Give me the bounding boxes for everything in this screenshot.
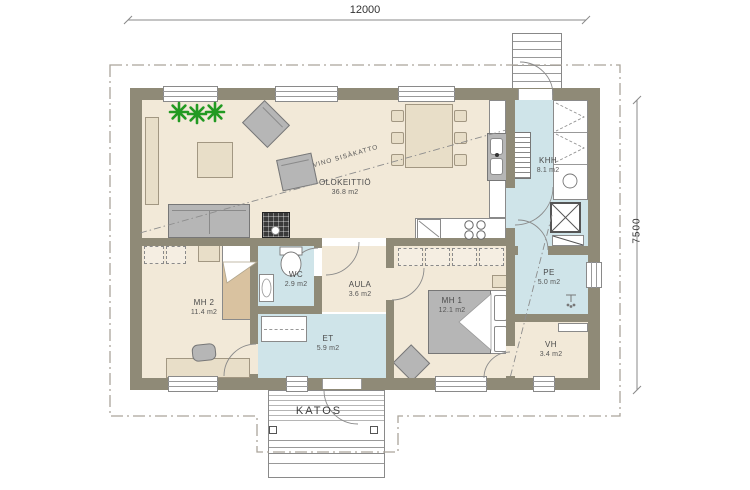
desk [166,358,250,378]
porch-step [268,453,385,478]
room-name: VH [545,340,557,350]
room-area: 36.8 m2 [332,189,359,197]
sideboard [145,117,159,205]
interior-wall [142,238,322,246]
room-name: MH 1 [442,296,463,306]
room-name: OLOKEITTIÖ [319,178,371,188]
room-label-wc: WC 2.9 m2 [270,270,322,289]
dining-chair [391,132,404,144]
room-name: KHH [539,156,557,166]
door-opening-khh [506,188,515,228]
room-area: 5.9 m2 [317,345,340,353]
porch-post [269,426,277,434]
window [435,376,487,392]
entrance-stairs [512,33,562,89]
wardrobe [425,248,450,266]
room-area: 3.4 m2 [540,351,563,359]
dimension-width-label: 12000 [320,4,410,16]
exterior-wall-left [130,88,142,390]
wardrobe [144,246,164,264]
room-name: ET [322,334,333,344]
window [533,376,555,392]
dining-chair [454,154,467,166]
dining-chair [454,132,467,144]
appliance-unit [550,202,581,233]
window [286,376,308,392]
room-name: MH 2 [194,298,215,308]
desk-chair [191,343,217,362]
room-label-pe: PE 5.0 m2 [522,268,576,287]
porch-post [370,426,378,434]
window [168,376,218,392]
wardrobe [166,246,186,264]
window [398,86,455,102]
room-floor-aula [322,246,386,312]
porch-label: KATOS [286,405,352,417]
window [275,86,338,102]
room-name: AULA [349,280,372,290]
door-opening-mh2 [250,344,258,374]
interior-wall [506,314,588,322]
dining-chair [454,110,467,122]
sink-basin [490,158,503,175]
fireplace-door [271,226,280,235]
room-label-et: ET 5.9 m2 [300,334,356,353]
room-label-mh1: MH 1 12.1 m2 [424,296,480,315]
room-label-olokeittio: OLOKEITTIÖ 36.8 m2 [300,178,390,197]
fridge [417,219,441,239]
dining-table [405,104,453,168]
room-name: WC [289,270,303,280]
dimension-height-label: 7500 [632,201,643,261]
interior-wall [390,238,508,246]
room-label-khh: KHH 8.1 m2 [519,156,577,175]
dining-chair [391,154,404,166]
cabinet-divider [554,132,587,133]
room-label-aula: AULA 3.6 m2 [330,280,390,299]
faucet-icon [495,153,499,157]
exterior-wall-right [588,88,600,390]
room-area: 3.6 m2 [349,291,372,299]
room-area: 11.4 m2 [191,309,217,317]
porch-step-line [269,463,384,464]
floor-plan: 12000 7500 VINO SISÄKATTO KATOS OLOKEITT… [0,0,750,490]
door-opening-vh [506,346,515,376]
interior-wall [386,238,394,390]
wardrobe [479,248,504,266]
door-opening-pe [518,246,548,255]
room-label-vh: VH 3.4 m2 [524,340,578,359]
deck-edge-line [269,440,384,441]
dining-chair [391,110,404,122]
entrance-door [518,89,553,100]
interior-wall [250,306,322,314]
room-area: 12.1 m2 [439,307,466,315]
window [586,262,602,288]
nightstand [198,245,220,262]
closet-shelf [558,323,588,332]
room-label-mh2: MH 2 11.4 m2 [176,298,232,317]
room-name: PE [543,268,554,278]
coffee-table [197,142,233,178]
terrace-door [322,379,362,389]
wardrobe [398,248,423,266]
room-area: 5.0 m2 [538,279,561,287]
sofa [168,204,250,238]
wardrobe [452,248,477,266]
room-area: 2.9 m2 [285,281,308,289]
window [163,86,218,102]
khh-cabinets [553,100,588,200]
deck-edge-line [269,447,384,448]
dimension-line-top [124,16,590,24]
appliance-unit [552,235,584,246]
room-area: 8.1 m2 [537,167,560,175]
